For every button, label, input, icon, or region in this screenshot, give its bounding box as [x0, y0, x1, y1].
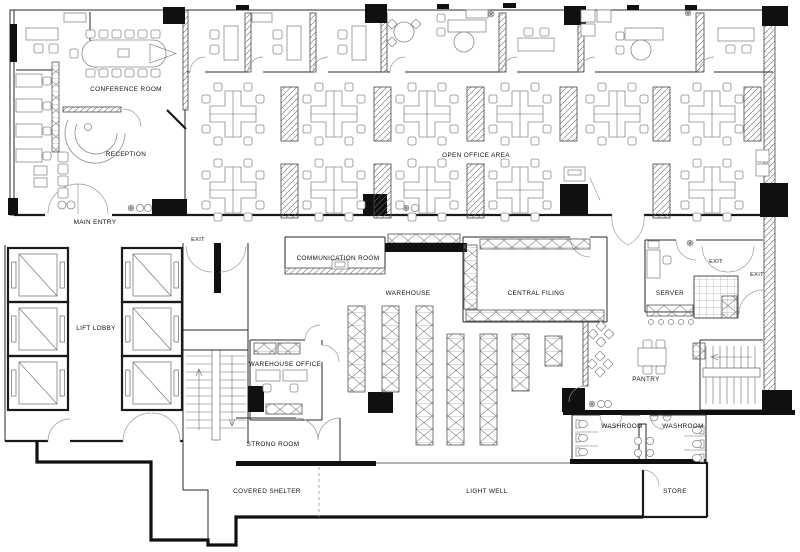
- floor-plan: CONFERENCE ROOM RECEPTION MAIN ENTRY OPE…: [0, 0, 800, 552]
- label-conference-room: CONFERENCE ROOM: [90, 86, 162, 93]
- label-exit-stair: EXIT: [191, 237, 205, 243]
- conference-table: [70, 30, 176, 77]
- lift-bank-left: [8, 248, 68, 410]
- label-covered-shelter: COVERED SHELTER: [233, 488, 301, 495]
- label-warehouse: WAREHOUSE: [386, 290, 431, 297]
- stair-right: [693, 343, 760, 404]
- server-room-furniture: [647, 240, 738, 325]
- office-5: [518, 28, 554, 51]
- label-pantry: PANTRY: [632, 376, 660, 383]
- label-store: STORE: [663, 488, 687, 495]
- label-central-filing: CENTRAL FILING: [508, 290, 565, 297]
- label-light-well: LIGHT WELL: [466, 488, 507, 495]
- label-lift-lobby: LIFT LOBBY: [76, 325, 116, 332]
- label-washroom-right: WASHROOM: [662, 423, 704, 430]
- warehouse-racks: [348, 306, 562, 445]
- exec-office: [581, 10, 691, 60]
- stair-left: [183, 350, 248, 440]
- floor-plan-canvas: CONFERENCE ROOM RECEPTION MAIN ENTRY OPE…: [0, 0, 800, 552]
- perimeter-desks: [16, 74, 51, 187]
- label-reception: RECEPTION: [106, 151, 146, 158]
- label-main-entry: MAIN ENTRY: [74, 219, 117, 226]
- lift-bank-right: [122, 248, 182, 410]
- filing-shelves: [464, 239, 604, 321]
- office-7: [718, 28, 754, 53]
- label-server: SERVER: [656, 290, 684, 297]
- label-open-office-area: OPEN OFFICE AREA: [442, 152, 510, 159]
- label-exit-right: EXIT: [750, 272, 764, 278]
- label-washroom-left: WASHROOM: [601, 423, 643, 430]
- copier-station: [560, 167, 600, 215]
- label-communication-room: COMMUNICATION ROOM: [297, 255, 380, 262]
- label-exit-server: EXIT: [709, 259, 723, 265]
- label-warehouse-office: WAREHOUSE OFFICE: [249, 361, 321, 368]
- meeting-office: [387, 10, 494, 52]
- pantry-furniture: [587, 321, 666, 408]
- label-strong-room: STRONG ROOM: [247, 441, 300, 448]
